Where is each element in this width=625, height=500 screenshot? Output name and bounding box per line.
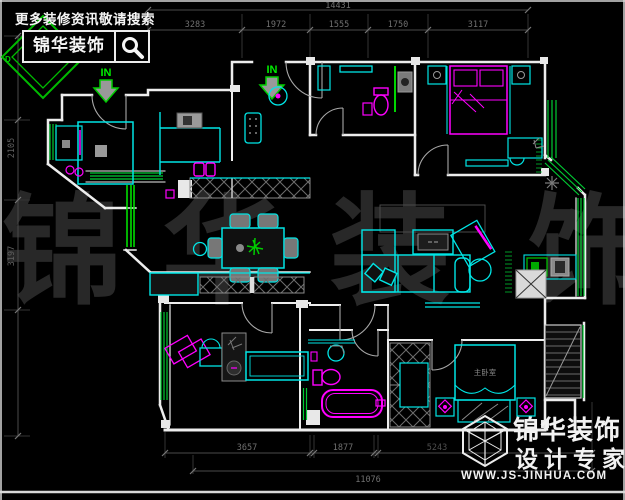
entry-arrow-icon-1: [94, 80, 118, 102]
dim-top-seg-1: 3283: [185, 20, 205, 30]
entry-in-label-2: IN: [267, 64, 278, 76]
dimension-labels-bottom: 3657 1877 5243 11076: [237, 443, 447, 485]
dimension-labels-top: 14431 3283 1972 1555 1750 3117: [185, 1, 488, 30]
desk-chair-icon: [200, 348, 222, 366]
bedroom-bottom-left: [165, 330, 308, 381]
brand-name: 锦华装饰: [24, 32, 114, 61]
diamond-logo-letter: D: [5, 55, 11, 64]
search-icon-cell: [114, 32, 148, 61]
dim-left-seg-1: 2105: [7, 138, 17, 158]
dim-bottom-seg-1: 3657: [237, 443, 257, 453]
cube-wireframe-icon: [459, 414, 511, 468]
bathroom-bottom: [308, 340, 385, 417]
dim-top-total: 14431: [325, 1, 351, 11]
footer-brand-url: WWW.JS-JINHUA.COM: [461, 470, 607, 482]
entry-in-label-1: IN: [101, 67, 112, 79]
bathroom-top: [318, 66, 412, 115]
entry-hall: [56, 87, 287, 184]
dim-top-seg-5: 3117: [468, 20, 488, 30]
footer-brand: 锦华装饰 设计专家 WWW.JS-JINHUA.COM: [453, 408, 625, 500]
balcony-right: [516, 255, 576, 298]
dim-top-seg-2: 1972: [266, 20, 286, 30]
dim-bottom-total: 11076: [355, 475, 381, 485]
brand-tagline: 更多装修资讯敬请搜索: [15, 8, 155, 28]
brand-search-box: 锦华装饰: [22, 30, 150, 63]
decor-star-icon: [545, 176, 559, 190]
walls: [48, 62, 585, 430]
search-icon: [119, 34, 145, 60]
dim-bottom-seg-3: 5243: [427, 443, 447, 453]
bedroom-top-right: [428, 66, 544, 166]
stairs: [545, 325, 581, 398]
wardrobe: [390, 343, 430, 427]
master-bed-label: 主卧室: [474, 367, 497, 377]
bathtub-icon: [322, 390, 385, 417]
dimensions-top: [145, 7, 531, 58]
entry-arrows: IN IN: [94, 64, 284, 102]
dim-top-seg-4: 1750: [388, 20, 408, 30]
dim-bottom-seg-2: 1877: [333, 443, 353, 453]
toilet-icon: [313, 370, 340, 386]
side-table-icon: [469, 259, 491, 281]
column-shaft: [516, 270, 546, 298]
windows: [50, 66, 585, 420]
dim-left-seg-2: 3197: [7, 246, 17, 266]
sink-icon: [328, 345, 344, 361]
floorplan-canvas: 锦 华 装 饰: [0, 0, 625, 500]
dim-top-seg-3: 1555: [329, 20, 349, 30]
toilet-icon: [374, 88, 388, 95]
footer-brand-subtitle: 设计专家: [515, 440, 625, 474]
